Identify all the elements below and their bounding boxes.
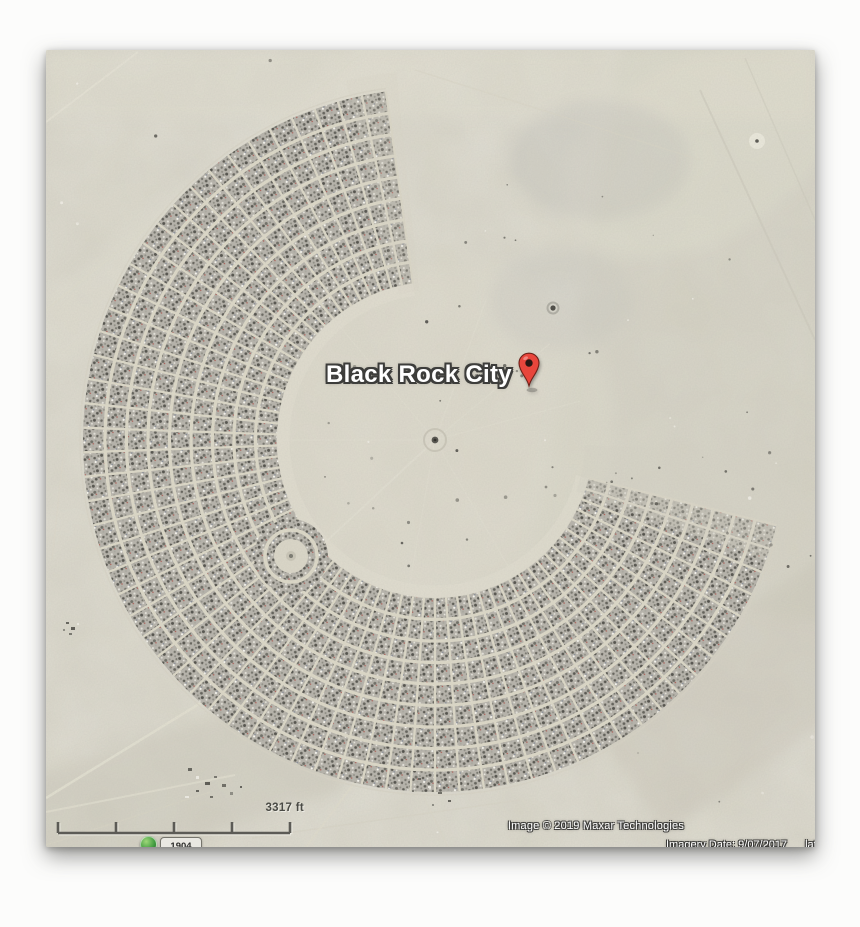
- imagery-attribution: Image © 2019 Maxar Technologies: [446, 820, 746, 832]
- globe-icon: [140, 836, 157, 847]
- place-pin-icon[interactable]: [517, 352, 541, 394]
- year-badge: 1904: [160, 837, 202, 847]
- satellite-map-canvas[interactable]: Black Rock City 3317 ft Image © 2019 Max…: [46, 50, 815, 847]
- scale-distance-label: 3317 ft: [196, 802, 304, 814]
- satellite-imagery: [46, 50, 815, 847]
- latlon-label: lat: [805, 839, 815, 847]
- google-earth-window: Black Rock City 3317 ft Image © 2019 Max…: [0, 0, 860, 927]
- place-marker: Black Rock City: [326, 352, 541, 394]
- place-label[interactable]: Black Rock City: [326, 358, 512, 392]
- status-bar-clipped: Imagery Date: 9/07/2017 lat: [666, 839, 815, 847]
- imagery-date-label: Imagery Date: 9/07/2017: [666, 839, 787, 847]
- scale-bar: [54, 816, 294, 838]
